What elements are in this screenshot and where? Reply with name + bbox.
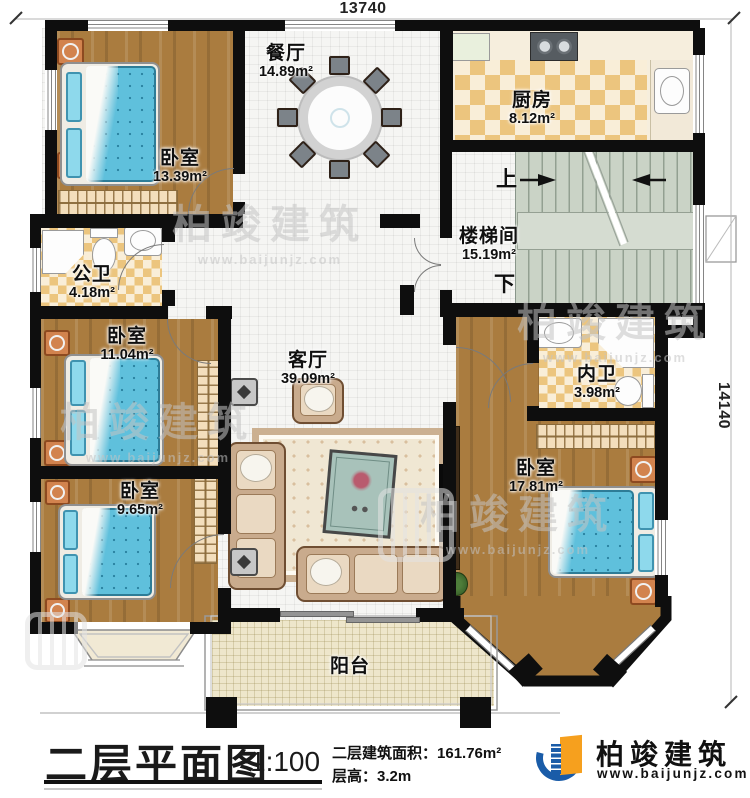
wall: [162, 214, 175, 242]
bed-blanket: [552, 490, 582, 574]
throw-pillow: [304, 386, 334, 412]
sheet-scale: 1:100: [250, 746, 320, 778]
bed-pillow: [638, 534, 654, 572]
bed-pillow: [638, 492, 654, 530]
room-label-bedroom-bottom-left: 卧室 9.65m²: [80, 481, 200, 519]
bed-blanket: [82, 508, 110, 596]
wardrobe: [58, 190, 178, 216]
wall: [440, 303, 705, 317]
sofa-cushion: [236, 494, 276, 534]
window: [88, 20, 168, 31]
window: [693, 205, 705, 303]
wall: [527, 317, 539, 363]
dining-chair: [381, 108, 402, 127]
sheet-info: 二层建筑面积：161.76m² 层高：3.2m: [332, 742, 501, 788]
window: [285, 20, 395, 31]
window: [693, 55, 705, 133]
throw-pillow: [240, 454, 272, 482]
bed-blanket: [86, 66, 118, 182]
dining-chair: [329, 160, 350, 179]
nightstand: [630, 578, 657, 605]
fridge: [452, 33, 490, 61]
speaker: [230, 548, 258, 576]
stair-down-label: 下: [494, 268, 515, 298]
wall: [400, 285, 414, 315]
room-label-balcony: 阳台: [290, 656, 410, 677]
balcony-sliding-door: [346, 617, 420, 623]
wall: [218, 306, 231, 470]
stair-up-label: 上: [496, 163, 517, 193]
logo-building-orange-icon: [560, 735, 582, 775]
window: [30, 502, 41, 552]
dining-chair: [277, 108, 298, 127]
dimension-right: 14140: [714, 382, 732, 429]
room-label-stairwell: 楼梯间 15.19m²: [429, 226, 549, 264]
room-label-bedroom-mid-left: 卧室 11.04m²: [67, 326, 187, 364]
nightstand: [45, 598, 70, 623]
wall: [30, 466, 231, 479]
brand-website: www.baijunjz.com: [597, 766, 749, 781]
window: [30, 388, 41, 438]
bed-blanket: [90, 358, 120, 462]
wall: [162, 290, 175, 306]
nightstand: [45, 480, 70, 505]
coffee-table: [322, 449, 397, 539]
bed-pillow: [63, 554, 78, 594]
bed-pillow: [66, 128, 82, 178]
wall: [218, 466, 231, 534]
wall: [443, 317, 456, 345]
wardrob e: [197, 360, 220, 468]
wall: [30, 306, 168, 319]
floor-height-label: 层高：: [332, 768, 377, 785]
wall: [440, 28, 453, 152]
title-underline: [44, 780, 322, 784]
window: [45, 70, 57, 130]
bed-pillow: [70, 360, 86, 406]
floor-plan-canvas: 柏竣建筑 www.baijunjz.com 柏竣建筑 www.baijunjz.…: [0, 0, 750, 798]
bed-pillow: [66, 72, 82, 122]
bed-pillow: [63, 510, 78, 550]
room-label-dining: 餐厅 14.89m²: [226, 43, 346, 81]
bath-sink: [544, 322, 574, 344]
logo-building-blue-icon: [551, 744, 561, 774]
kitchen-sink-basin: [660, 76, 684, 106]
room-label-living: 客厅 39.09m²: [248, 350, 368, 388]
title-underline-2: [44, 788, 322, 790]
wall: [416, 608, 464, 622]
room-label-private-bath: 内卫 3.98m²: [537, 364, 657, 402]
wardrobe: [536, 424, 658, 449]
wall: [443, 402, 456, 622]
stove: [530, 32, 578, 61]
room-label-bedroom-right: 卧室 17.81m²: [476, 458, 596, 496]
throw-pillow: [310, 558, 342, 586]
room-label-bedroom-top-left: 卧室 13.39m²: [120, 148, 240, 186]
toilet-tank: [90, 228, 118, 238]
floor-height-value: 3.2m: [377, 768, 411, 785]
wall: [218, 608, 280, 622]
sofa-cushion: [402, 554, 440, 594]
nightstand: [57, 38, 84, 65]
wall: [440, 140, 703, 152]
wall: [190, 622, 231, 634]
wall: [233, 202, 245, 214]
wall: [30, 214, 243, 228]
dimension-top: 13740: [318, 0, 408, 18]
wall: [527, 408, 668, 421]
nightstand: [630, 456, 657, 483]
floor-area-value: 161.76m²: [437, 745, 501, 762]
sofa-cushion: [354, 554, 398, 594]
window: [655, 520, 668, 575]
balcony-sliding-door: [280, 611, 354, 617]
room-label-public-bath: 公卫 4.18m²: [32, 264, 152, 302]
floor-area-label: 二层建筑面积：: [332, 745, 437, 762]
wall: [30, 622, 78, 634]
wall: [380, 214, 420, 228]
bed-pillow: [70, 410, 86, 456]
room-label-kitchen: 厨房 8.12m²: [472, 90, 592, 128]
